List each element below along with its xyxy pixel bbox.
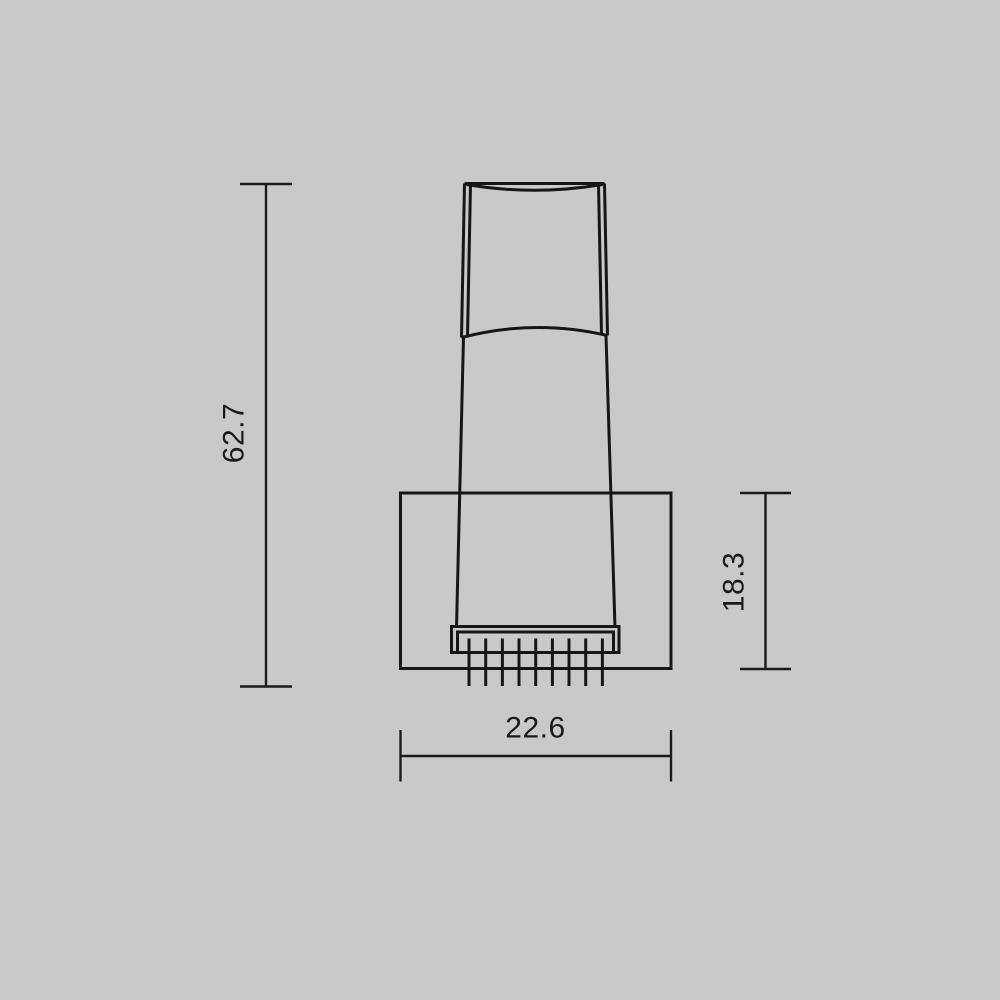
fixture-stem <box>457 336 616 628</box>
stem-right-edge <box>606 336 615 628</box>
head-right-outer-edge <box>605 184 608 336</box>
technical-drawing-canvas: 62.7 18.3 22.6 <box>0 0 1000 1000</box>
fixture-head <box>462 184 608 338</box>
stem-left-edge <box>457 337 464 628</box>
dimension-overall-height: 62.7 <box>218 184 293 687</box>
head-left-outer-edge <box>462 184 465 338</box>
connector-pins <box>469 639 602 687</box>
head-left-inner-edge <box>468 185 471 337</box>
dimension-label-base-height: 18.3 <box>718 552 751 612</box>
fixture-outline <box>401 184 672 687</box>
dimension-base-height: 18.3 <box>718 493 792 669</box>
dimension-drawing: 62.7 18.3 22.6 <box>0 0 1000 1000</box>
head-bottom-arc <box>462 327 608 337</box>
dimension-label-base-width: 22.6 <box>505 712 565 745</box>
head-right-inner-edge <box>599 185 602 335</box>
head-top-rim-arc <box>467 185 603 191</box>
dimension-label-overall-height: 62.7 <box>218 403 251 463</box>
dimension-base-width: 22.6 <box>401 712 672 782</box>
